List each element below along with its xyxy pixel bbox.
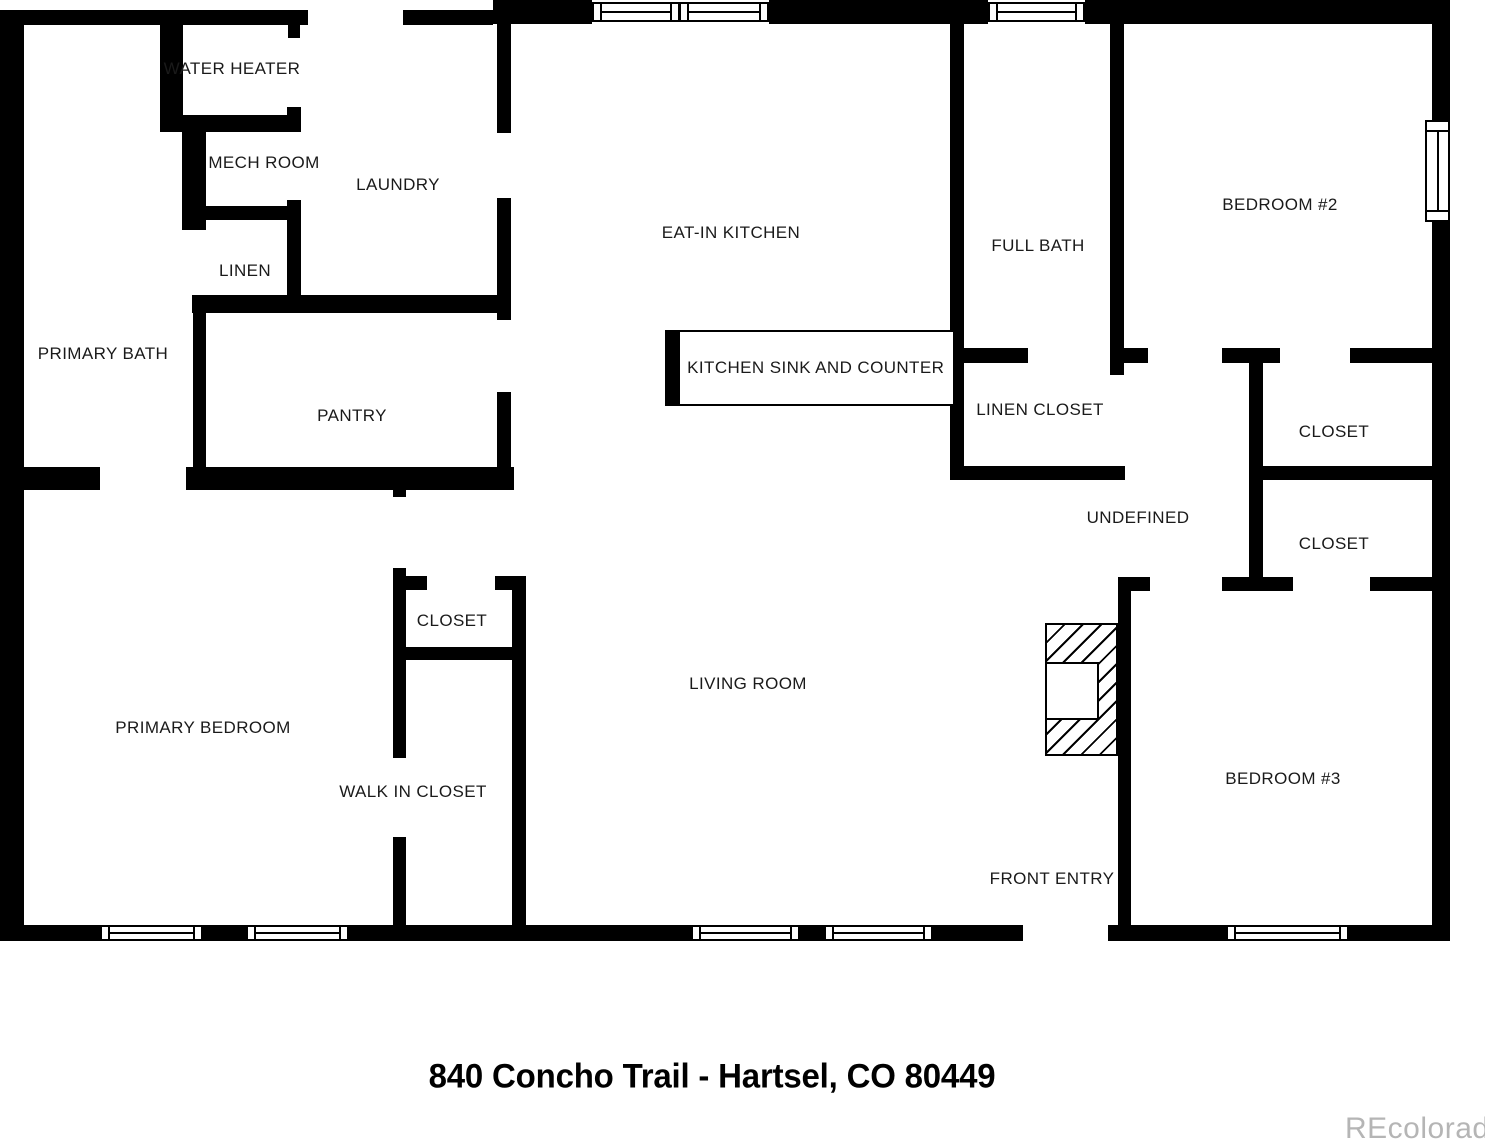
room-label-full-bath: FULL BATH	[991, 236, 1084, 256]
room-label-front-entry: FRONT ENTRY	[990, 869, 1115, 889]
room-label-kitchen-counter: KITCHEN SINK AND COUNTER	[687, 358, 944, 378]
wall	[24, 467, 100, 490]
room-label-eat-in-kitchen: EAT-IN KITCHEN	[662, 223, 800, 243]
fireplace-inner	[1045, 662, 1099, 720]
window-symbol	[679, 2, 769, 22]
wall	[193, 313, 206, 489]
kitchen-counter: KITCHEN SINK AND COUNTER	[665, 330, 955, 406]
window-symbol	[691, 925, 800, 941]
wall	[1263, 466, 1436, 480]
wall	[950, 466, 1125, 480]
wall	[933, 925, 1023, 941]
window-glass-line	[699, 932, 792, 934]
window-glass-line	[254, 932, 341, 934]
wall	[0, 10, 308, 25]
wall	[393, 837, 406, 941]
window-glass-line	[996, 11, 1077, 13]
window-symbol	[246, 925, 349, 941]
window-symbol	[592, 2, 680, 22]
wall	[1085, 0, 1450, 24]
wall	[1432, 0, 1450, 120]
wall	[287, 107, 301, 132]
window-glass-line	[1437, 130, 1439, 212]
room-label-bedroom-3: BEDROOM #3	[1225, 769, 1340, 789]
wall	[1222, 348, 1280, 363]
wall	[512, 576, 526, 941]
wall	[950, 348, 1028, 363]
wall	[203, 925, 246, 941]
wall	[497, 198, 511, 320]
floorplan: KITCHEN SINK AND COUNTERWATER HEATERMECH…	[0, 0, 1485, 1140]
room-label-laundry: LAUNDRY	[356, 175, 440, 195]
window-symbol	[100, 925, 203, 941]
room-label-linen: LINEN	[219, 261, 271, 281]
wall	[405, 576, 427, 590]
wall	[497, 24, 511, 133]
wall	[288, 24, 300, 38]
wall	[24, 925, 100, 941]
room-label-primary-bath: PRIMARY BATH	[38, 344, 168, 364]
room-label-closet-primary: CLOSET	[417, 611, 487, 631]
room-label-walk-in-closet: WALK IN CLOSET	[339, 782, 487, 802]
room-label-closet-bedroom2: CLOSET	[1299, 422, 1369, 442]
counter-end-cap	[667, 332, 680, 404]
fireplace-hatch	[1045, 623, 1118, 756]
room-label-primary-bedroom: PRIMARY BEDROOM	[115, 718, 290, 738]
wall	[193, 295, 511, 313]
floorplan-canvas: KITCHEN SINK AND COUNTERWATER HEATERMECH…	[0, 0, 1485, 1140]
window-glass-line	[600, 11, 672, 13]
wall	[1110, 348, 1148, 363]
wall	[393, 482, 406, 497]
window-glass-line	[687, 11, 761, 13]
window-symbol	[1425, 120, 1450, 222]
window-glass-line	[1234, 932, 1341, 934]
wall	[769, 0, 988, 24]
wall	[1222, 577, 1293, 591]
room-label-pantry: PANTRY	[317, 406, 387, 426]
address-title: 840 Concho Trail - Hartsel, CO 80449	[429, 1058, 996, 1097]
wall	[495, 576, 512, 590]
room-label-mech-room: MECH ROOM	[208, 153, 319, 173]
wall	[950, 24, 964, 480]
room-label-water-heater: WATER HEATER	[164, 59, 301, 79]
wall	[160, 115, 301, 132]
room-label-living-room: LIVING ROOM	[689, 674, 807, 694]
room-label-bedroom-2: BEDROOM #2	[1222, 195, 1337, 215]
room-label-linen-closet: LINEN CLOSET	[976, 400, 1104, 420]
wall	[1118, 577, 1131, 941]
recolorado-watermark: REcolorado	[1345, 1112, 1485, 1140]
wall	[0, 10, 24, 941]
window-symbol	[988, 2, 1085, 22]
wall	[800, 925, 824, 941]
wall	[1110, 24, 1124, 375]
wall	[403, 10, 493, 25]
wall	[393, 568, 406, 758]
wall	[1350, 348, 1436, 363]
wall	[186, 467, 514, 490]
window-glass-line	[108, 932, 195, 934]
wall	[182, 132, 206, 230]
room-label-undefined-room: UNDEFINED	[1087, 508, 1190, 528]
window-symbol	[1226, 925, 1349, 941]
wall	[493, 0, 592, 24]
window-glass-line	[832, 932, 925, 934]
wall	[1370, 577, 1436, 591]
room-label-closet-bedroom3: CLOSET	[1299, 534, 1369, 554]
window-symbol	[824, 925, 933, 941]
wall	[1249, 363, 1263, 590]
wall	[206, 206, 301, 220]
wall	[405, 647, 512, 660]
